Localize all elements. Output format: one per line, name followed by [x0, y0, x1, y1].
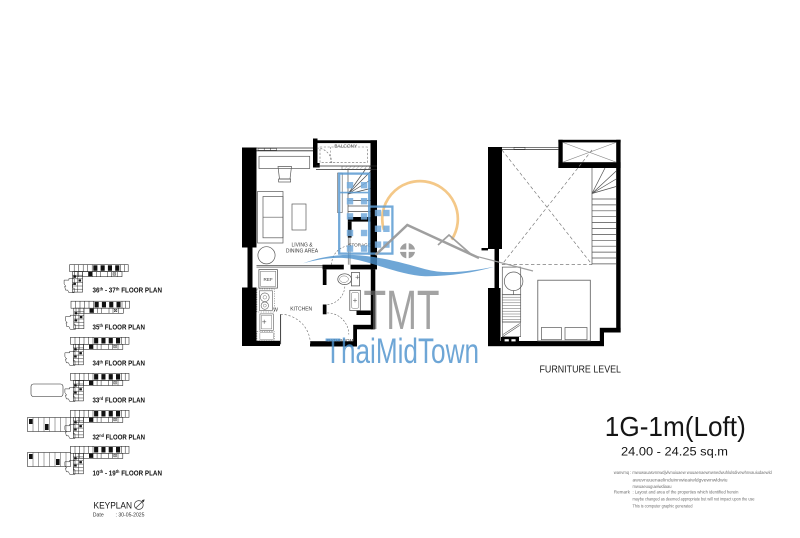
svg-text:mwuaeuuguwiwdiaau: mwuaeuuguwiwdiaau: [633, 484, 672, 489]
svg-text:KEYPLAN: KEYPLAN: [94, 501, 133, 512]
svg-text:10th - 19th FLOOR PLAN: 10th - 19th FLOOR PLAN: [93, 469, 163, 477]
svg-text:Date: Date: [93, 512, 104, 518]
svg-text:This is computer graphic gener: This is computer graphic generated: [633, 504, 693, 509]
svg-text:ThaiMidTown: ThaiMidTown: [325, 332, 479, 371]
svg-text:wanvmq : mwuwauasvnnwdjvlvnuiu: wanvmq : mwuwauasvnnwdjvlvnuiuaew wuuaen…: [614, 470, 772, 475]
svg-text:24.00 - 24.25 sq.m: 24.00 - 24.25 sq.m: [621, 446, 728, 458]
svg-text:maybe changed as deemed approp: maybe changed as deemed appropriate but …: [633, 497, 755, 502]
svg-text:BALCONY: BALCONY: [334, 144, 358, 150]
svg-text:: Layout and area of the prope: : Layout and area of the properties whic…: [633, 490, 739, 495]
svg-text:Remark: Remark: [614, 490, 631, 495]
svg-text:awuvnuuenaelinduinnwieaiwldgve: awuvnuuenaelinduinnwieaiwldgvewnwldwiu: [633, 477, 728, 482]
svg-text:W: W: [273, 308, 278, 314]
svg-text:KITCHEN: KITCHEN: [290, 306, 312, 312]
svg-text:1G-1m(Loft): 1G-1m(Loft): [605, 411, 746, 442]
svg-text:FURNITURE LEVEL: FURNITURE LEVEL: [540, 365, 622, 376]
svg-text:: 30-05-2025: : 30-05-2025: [116, 512, 145, 518]
svg-text:DINING AREA: DINING AREA: [286, 249, 319, 255]
svg-text:REF: REF: [264, 277, 273, 282]
svg-text:36th - 37th FLOOR PLAN: 36th - 37th FLOOR PLAN: [93, 287, 163, 295]
